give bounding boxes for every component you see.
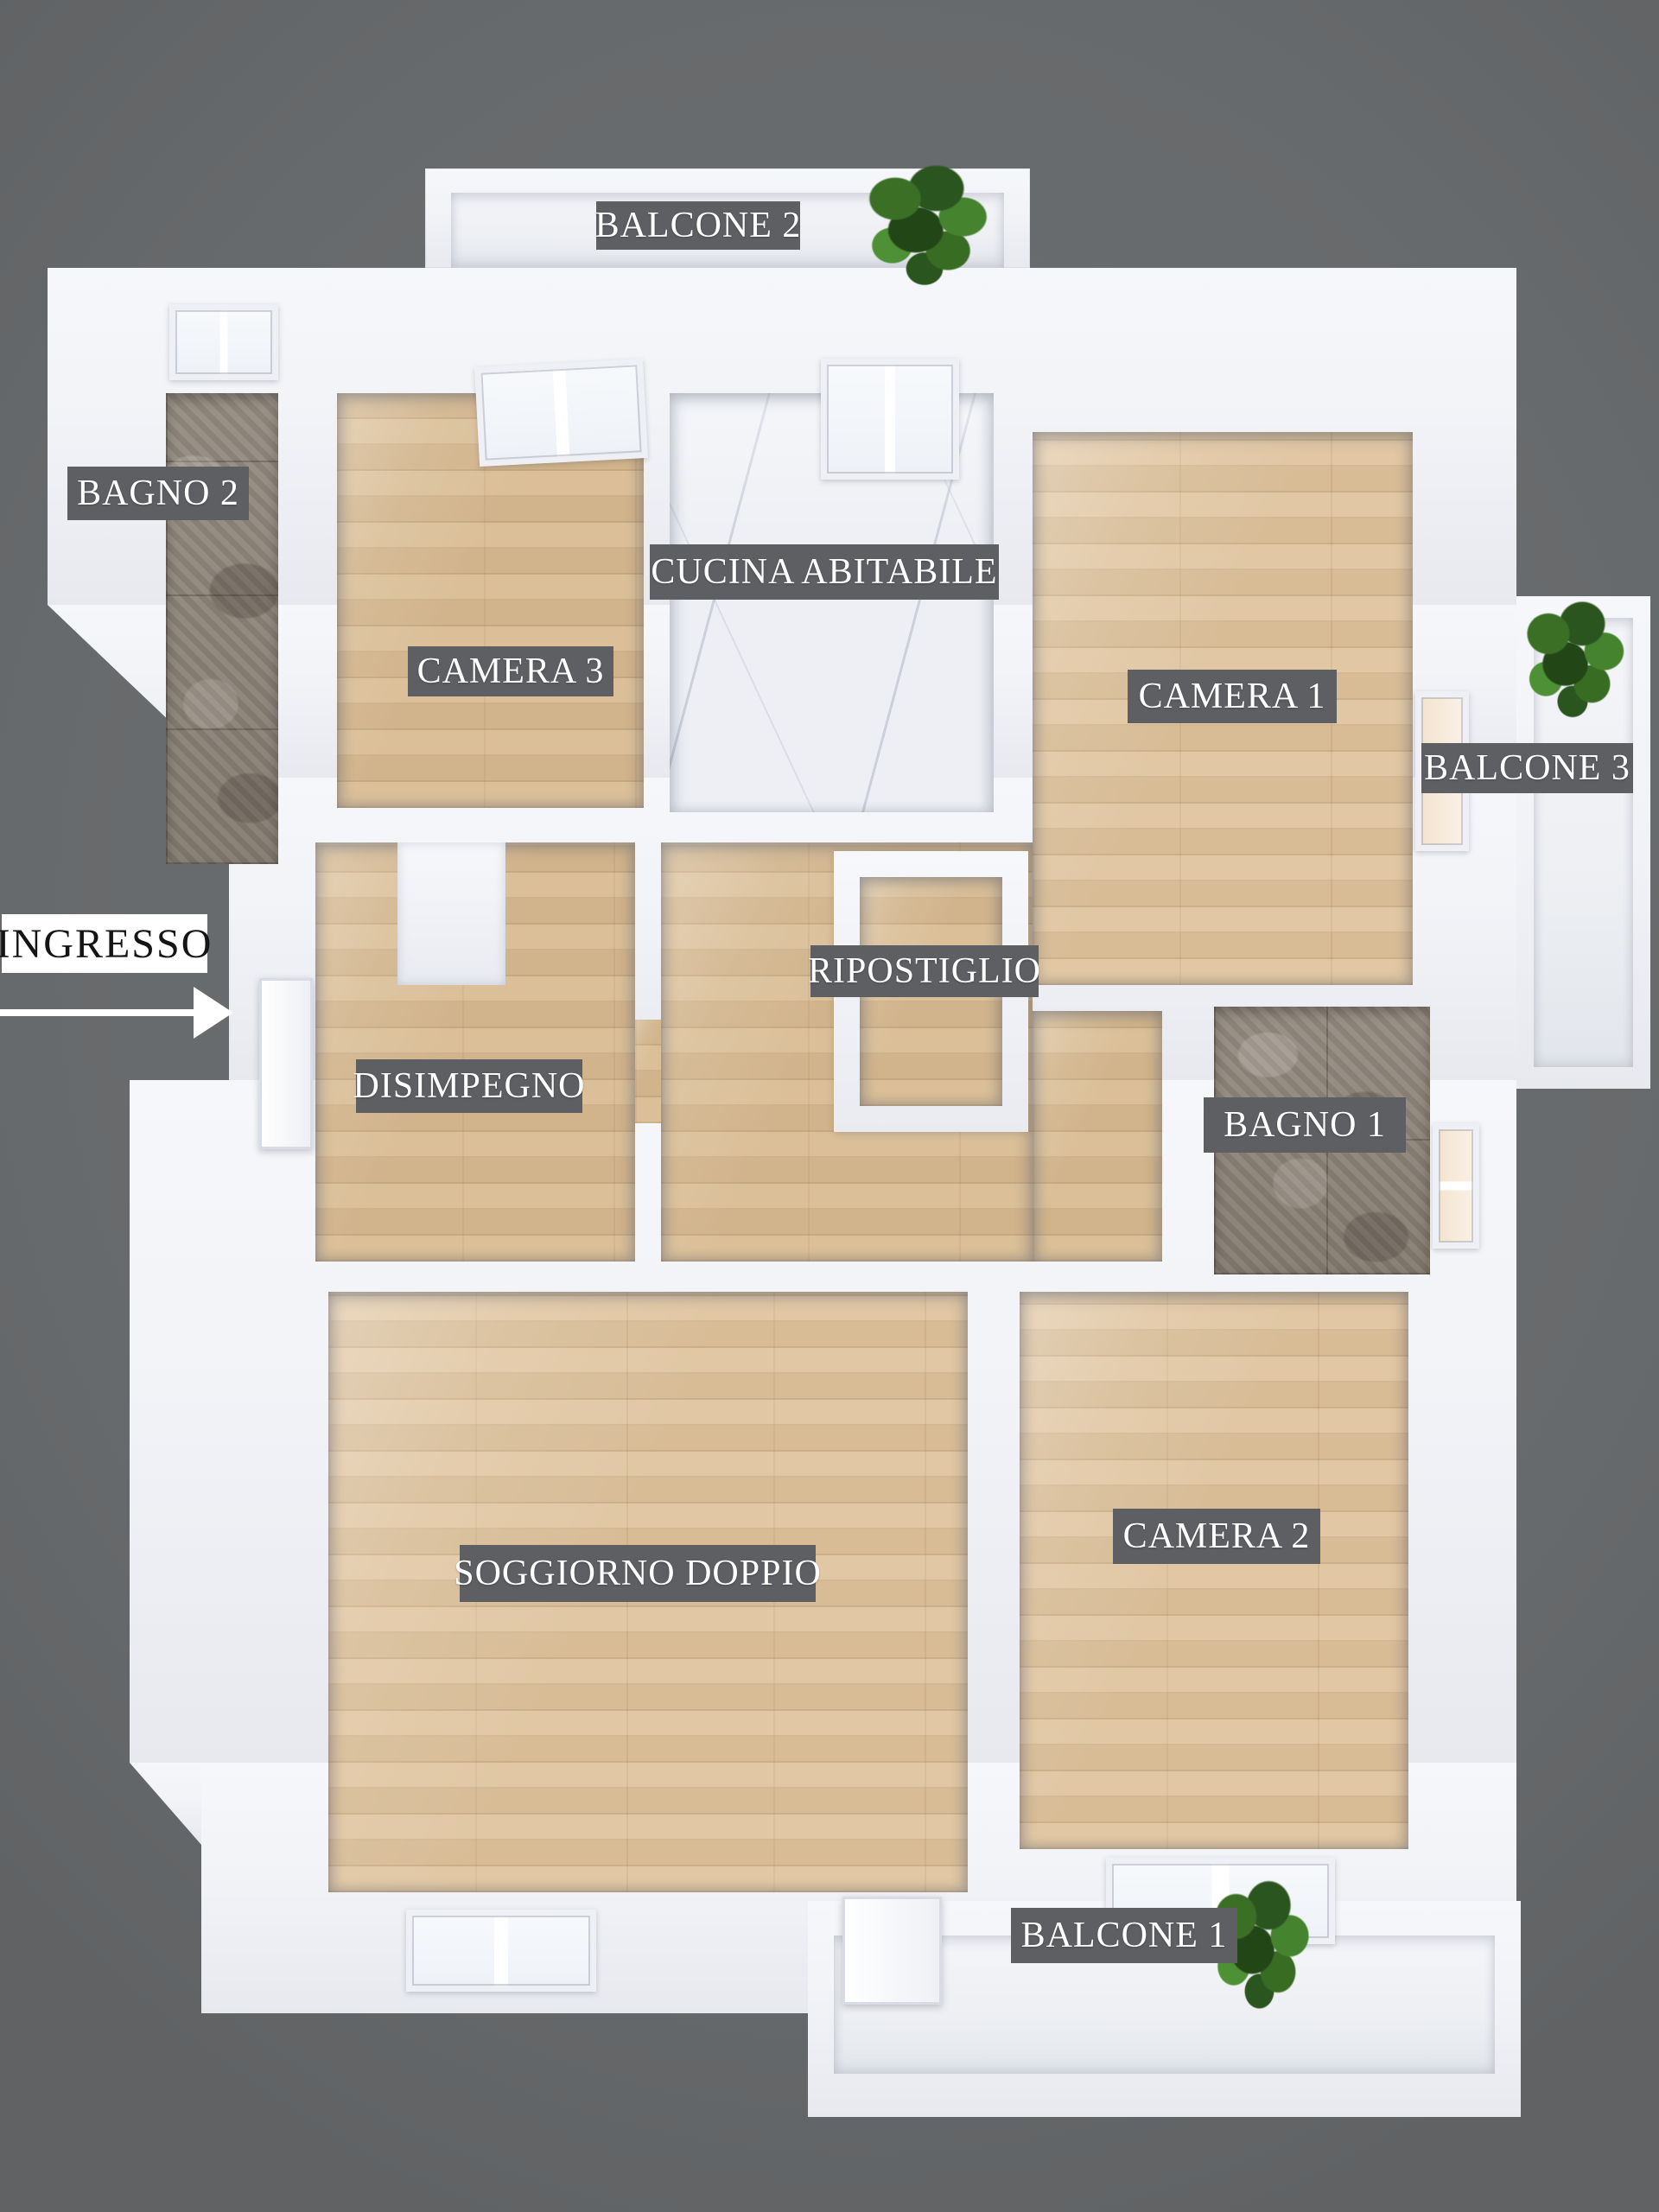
camera-3-balcony-door bbox=[474, 359, 648, 467]
room-label-cucina: CUCINA ABITABILE bbox=[650, 544, 999, 600]
balcone-1-door bbox=[842, 1897, 942, 2005]
floor-plan: BALCONE 2 BAGNO 2 CAMERA 3 CUCINA ABITAB… bbox=[0, 0, 1659, 2212]
closet-niche bbox=[397, 842, 505, 985]
potted-plant-balcone-2-icon bbox=[851, 160, 998, 289]
room-label-camera-3: CAMERA 3 bbox=[408, 646, 613, 696]
floor-hallway-east bbox=[1033, 1011, 1162, 1262]
entrance-door bbox=[259, 978, 313, 1149]
cucina-window bbox=[821, 359, 959, 480]
room-label-bagno-1: BAGNO 1 bbox=[1204, 1097, 1406, 1153]
floor-bagno-2 bbox=[166, 393, 278, 864]
entrance-label: INGRESSO bbox=[2, 914, 207, 973]
floor-camera-2 bbox=[1020, 1292, 1408, 1849]
room-label-balcone-2: BALCONE 2 bbox=[596, 201, 800, 250]
floor-doorway-disimpegno bbox=[635, 1020, 661, 1123]
potted-plant-balcone-3-icon bbox=[1512, 596, 1633, 721]
room-label-ripostiglio: RIPOSTIGLIO bbox=[810, 945, 1039, 997]
room-label-camera-2: CAMERA 2 bbox=[1113, 1509, 1320, 1564]
entrance-arrow-head-icon bbox=[194, 987, 233, 1039]
room-label-disimpegno: DISIMPEGNO bbox=[356, 1059, 582, 1113]
entrance-arrow-icon bbox=[0, 1009, 197, 1016]
room-label-camera-1: CAMERA 1 bbox=[1128, 670, 1337, 723]
room-label-bagno-2: BAGNO 2 bbox=[67, 467, 249, 520]
bagno-2-skylight-window bbox=[169, 304, 278, 380]
room-label-balcone-3: BALCONE 3 bbox=[1421, 743, 1633, 793]
bagno-1-window bbox=[1433, 1123, 1479, 1249]
room-label-balcone-1: BALCONE 1 bbox=[1011, 1908, 1237, 1963]
wall-diagonal-bottom-left bbox=[130, 1763, 201, 1845]
soggiorno-window bbox=[406, 1910, 596, 1992]
room-label-soggiorno: SOGGIORNO DOPPIO bbox=[460, 1545, 816, 1602]
